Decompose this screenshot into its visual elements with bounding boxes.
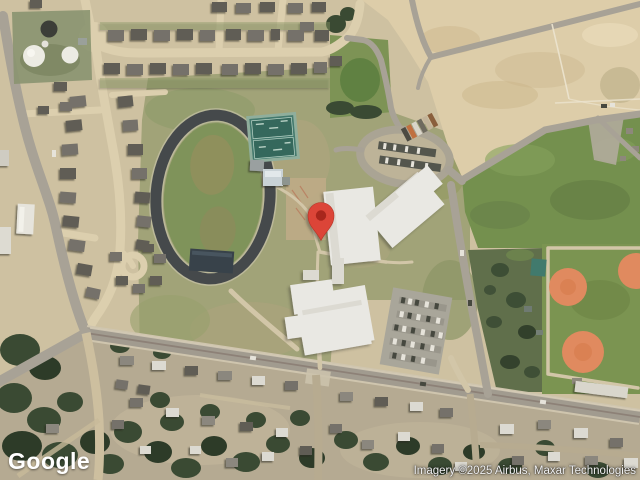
baseball-diamond (549, 268, 587, 306)
water-tanks (12, 10, 92, 84)
satellite-imagery[interactable] (0, 0, 640, 480)
attribution-text: Imagery ©2025 Airbus, Maxar Technologies (414, 465, 636, 477)
static-map-container[interactable]: Google Imagery ©2025 Airbus, Maxar Techn… (0, 0, 640, 480)
tennis-courts (246, 112, 300, 163)
google-logo[interactable]: Google (8, 448, 90, 475)
marker-inner-dot (316, 210, 326, 220)
